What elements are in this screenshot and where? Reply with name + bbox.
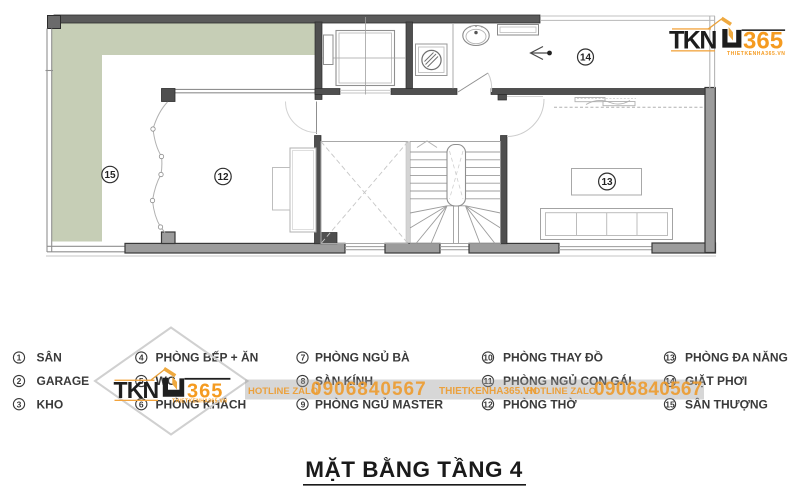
svg-text:3: 3 [17, 399, 22, 409]
svg-text:TKN: TKN [114, 377, 159, 403]
svg-text:13: 13 [665, 353, 675, 363]
svg-text:12: 12 [217, 172, 229, 183]
svg-text:MẶT BẰNG TẦNG 4: MẶT BẰNG TẦNG 4 [305, 457, 523, 482]
svg-text:HOTLINE ZALO: HOTLINE ZALO [248, 386, 318, 397]
svg-text:PHÒNG THAY ĐỒ: PHÒNG THAY ĐỒ [503, 350, 603, 365]
svg-text:13: 13 [601, 177, 613, 188]
svg-text:1: 1 [17, 353, 22, 363]
svg-text:0906840567: 0906840567 [594, 379, 703, 400]
svg-text:THIETKENHA365.VN: THIETKENHA365.VN [727, 51, 786, 57]
svg-text:7: 7 [301, 353, 306, 363]
svg-text:PHÒNG NGỦ BÀ: PHÒNG NGỦ BÀ [315, 350, 410, 365]
svg-text:12: 12 [483, 399, 493, 409]
svg-text:4: 4 [139, 353, 144, 363]
svg-text:9: 9 [301, 399, 306, 409]
svg-text:0906840567: 0906840567 [311, 379, 427, 400]
svg-text:HOTLINE ZALO: HOTLINE ZALO [526, 386, 596, 397]
svg-text:2: 2 [17, 376, 22, 386]
svg-text:KHO: KHO [37, 397, 64, 411]
svg-text:10: 10 [483, 353, 493, 363]
svg-text:GARAGE: GARAGE [37, 374, 90, 388]
svg-text:PHÒNG ĐA NĂNG: PHÒNG ĐA NĂNG [685, 350, 788, 365]
svg-text:SÂN: SÂN [37, 350, 62, 365]
svg-text:14: 14 [580, 53, 592, 64]
svg-text:15: 15 [104, 170, 116, 181]
svg-text:THIETKENHA365.VN: THIETKENHA365.VN [439, 386, 537, 397]
svg-text:THIETKENHA365.VN: THIETKENHA365.VN [172, 398, 227, 404]
svg-text:15: 15 [665, 399, 675, 409]
